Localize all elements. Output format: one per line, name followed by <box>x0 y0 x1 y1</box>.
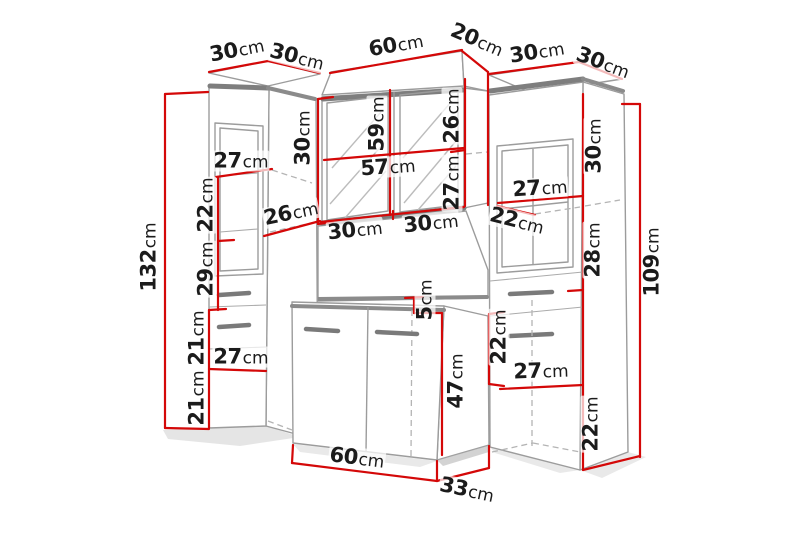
dimension-value: 47 <box>444 380 468 408</box>
dimension-unit: cm <box>243 349 269 369</box>
dimension-label-mirror-upper-section: 26cm <box>442 87 463 144</box>
right-cabinet-drawing <box>489 62 628 470</box>
dimension-label-left-shelf-height-upper: 22cm <box>196 176 217 233</box>
dimension-unit: cm <box>198 177 218 203</box>
dimension-unit: cm <box>189 370 209 396</box>
dimension-unit: cm <box>389 157 416 179</box>
dimension-unit: cm <box>356 219 384 242</box>
dimension-value: 60 <box>328 442 359 469</box>
furniture-dimension-diagram: 30cm30cm60cm20cm30cm30cm132cm27cm22cm29c… <box>0 0 800 533</box>
dimension-label-mirror-door-width-left: 30cm <box>325 217 384 244</box>
dimension-unit: cm <box>141 222 161 248</box>
dimension-label-left-lower-door-width: 27cm <box>212 347 269 368</box>
dimension-value: 60 <box>367 33 399 62</box>
dimension-value: 26 <box>440 115 464 143</box>
dimension-label-mirror-inner-width: 57cm <box>359 155 417 180</box>
dimension-unit: cm <box>491 309 511 335</box>
dimension-value: 29 <box>194 268 218 296</box>
dimension-unit: cm <box>198 241 218 267</box>
dimension-unit: cm <box>448 353 468 379</box>
dimension-value: 59 <box>365 123 389 151</box>
dimension-unit: cm <box>295 110 315 136</box>
dimension-value: 109 <box>640 254 664 296</box>
dimension-unit: cm <box>189 310 209 336</box>
dimension-value: 30 <box>326 217 357 244</box>
dimension-label-left-cabinet-total-height: 132cm <box>139 221 160 292</box>
dimension-value: 57 <box>360 154 390 180</box>
dimension-value: 132 <box>137 249 161 291</box>
dimension-value: 27 <box>213 149 241 173</box>
dimension-unit: cm <box>243 153 269 173</box>
dimension-unit: cm <box>585 222 605 248</box>
dimension-label-right-upper-section: 30cm <box>584 117 605 174</box>
dimension-value: 22 <box>194 204 218 232</box>
dimension-unit: cm <box>583 396 603 422</box>
dimension-value: 27 <box>513 358 542 383</box>
dimension-label-right-lower-door-width: 27cm <box>512 360 570 383</box>
dimension-unit: cm <box>644 227 664 253</box>
dimension-unit: cm <box>542 362 569 383</box>
dimension-label-mirror-lower-section: 27cm <box>442 154 463 211</box>
dimension-value: 30 <box>291 137 315 165</box>
dimension-value: 21 <box>185 337 209 365</box>
dimension-label-mirror-side-height: 30cm <box>293 109 314 166</box>
dimension-label-right-drawer-section: 22cm <box>489 308 510 365</box>
dimension-value: 28 <box>581 249 605 277</box>
dimension-unit: cm <box>432 212 460 235</box>
dimension-unit: cm <box>369 96 389 122</box>
dimension-label-left-lower-section-lower: 21cm <box>187 369 208 426</box>
dimension-value: 30 <box>582 145 606 173</box>
dimension-unit: cm <box>444 88 464 114</box>
dimension-label-right-door-inner-width: 27cm <box>511 176 569 201</box>
dimension-label-mirror-door-width-right: 30cm <box>401 210 460 237</box>
dimension-value: 30 <box>402 210 433 237</box>
dimension-unit: cm <box>537 39 566 63</box>
dimension-label-mirror-door-height: 59cm <box>367 95 388 152</box>
dimension-unit: cm <box>417 279 437 305</box>
dimension-value: 21 <box>185 397 209 425</box>
dimension-unit: cm <box>444 155 464 181</box>
dimension-label-vanity-height: 47cm <box>446 352 467 409</box>
dimension-unit: cm <box>541 178 568 200</box>
dimension-value: 22 <box>487 336 511 364</box>
dimension-value: 27 <box>440 182 464 210</box>
cabinet-line-art <box>0 0 800 533</box>
dimension-label-left-shelf-height-lower: 29cm <box>196 240 217 297</box>
dimension-label-right-plinth-section: 22cm <box>581 395 602 452</box>
dimension-value: 22 <box>579 423 603 451</box>
dimension-label-mirror-panel-gap: 5cm <box>415 278 436 321</box>
dimension-label-right-middle-section: 28cm <box>583 221 604 278</box>
dimension-value: 27 <box>213 345 241 369</box>
dimension-value: 30 <box>508 40 540 68</box>
dimension-label-left-lower-section-upper: 21cm <box>187 309 208 366</box>
dimension-unit: cm <box>586 118 606 144</box>
dimension-value: 5 <box>413 306 437 320</box>
dimension-value: 27 <box>512 175 542 201</box>
dimension-label-right-cabinet-total-height: 109cm <box>642 226 663 297</box>
dimension-label-left-door-inner-width: 27cm <box>212 151 269 172</box>
dimension-unit: cm <box>357 450 385 473</box>
